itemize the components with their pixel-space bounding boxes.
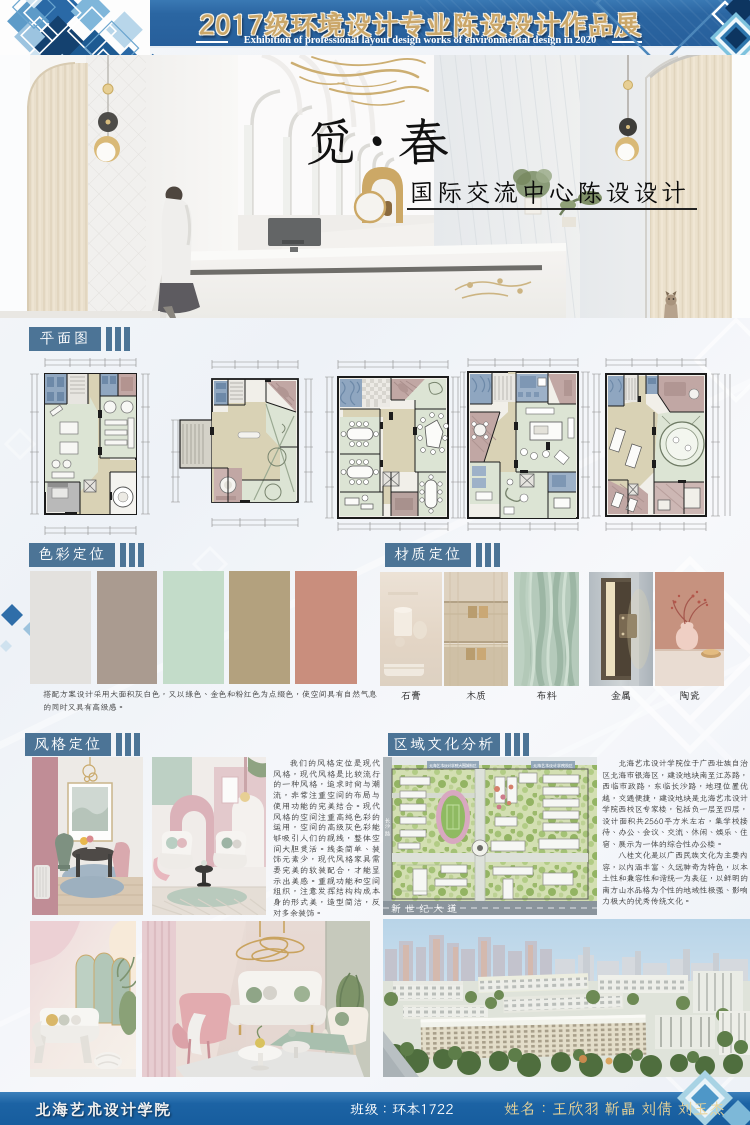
svg-text:新世纪大道: 新世纪大道 <box>391 902 461 915</box>
svg-text:北海艺术设计学院大围城校区: 北海艺术设计学院大围城校区 <box>429 762 477 769</box>
svg-text:北海艺术设计学院校区: 北海艺术设计学院校区 <box>533 763 573 769</box>
svg-text:长沙路: 长沙路 <box>384 817 392 837</box>
